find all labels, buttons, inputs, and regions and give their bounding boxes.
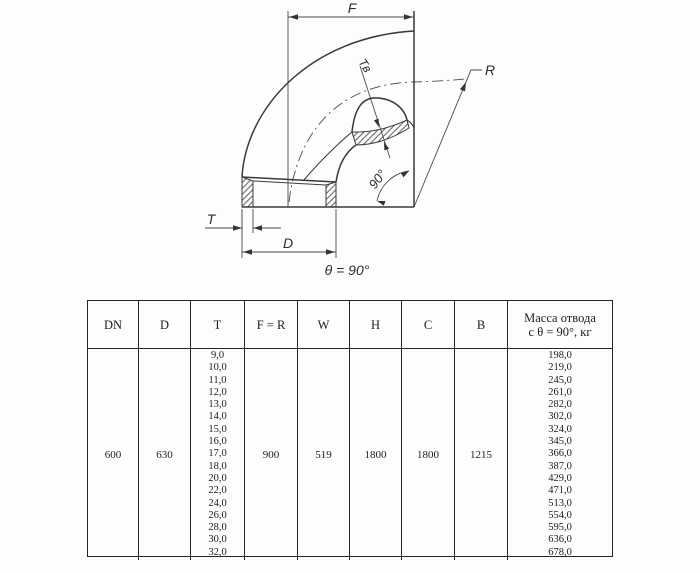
- t-arrow-right: [253, 225, 262, 231]
- r-leader-line: [414, 70, 482, 207]
- t-label: T: [207, 211, 217, 227]
- outer-arc: [242, 31, 414, 177]
- col-header-t: T: [191, 301, 245, 349]
- col-header-c: C: [402, 301, 455, 349]
- tv-arrow-top: [374, 119, 381, 128]
- value-d: 630: [139, 349, 191, 560]
- value-b: 1215: [455, 349, 508, 560]
- t-extension-lines: [205, 209, 281, 233]
- elbow-drawing: F R T D Tв 90° θ = 90°: [0, 0, 700, 292]
- f-label: F: [348, 0, 358, 16]
- value-c: 1800: [402, 349, 455, 560]
- r-label: R: [485, 62, 495, 78]
- angle-arrow-top: [401, 169, 410, 177]
- dimensions-table: DN D T F = R W H C B Масса отвода с θ = …: [87, 300, 613, 557]
- value-h: 1800: [350, 349, 402, 560]
- angle-label: 90°: [365, 167, 389, 192]
- t-arrow-left: [233, 225, 242, 231]
- value-dn: 600: [88, 349, 139, 560]
- f-arrow-right: [404, 14, 413, 20]
- col-header-mass: Масса отвода с θ = 90°, кг: [508, 301, 612, 349]
- value-t-list: 9,0 10,0 11,0 12,0 13,0 14,0 15,0 16,0 1…: [191, 349, 245, 560]
- inner-arc-near: [336, 145, 356, 182]
- value-w: 519: [298, 349, 350, 560]
- value-fr: 900: [245, 349, 298, 560]
- catalog-page: F R T D Tв 90° θ = 90° DN D T F = R W H …: [0, 0, 700, 573]
- col-header-dn: DN: [88, 301, 139, 349]
- r-arrow: [460, 81, 469, 91]
- col-header-fr: F = R: [245, 301, 298, 349]
- d-label: D: [283, 235, 293, 251]
- col-header-w: W: [298, 301, 350, 349]
- tv-label: Tв: [355, 56, 374, 75]
- d-arrow-left: [243, 249, 252, 255]
- d-arrow-right: [326, 249, 335, 255]
- wall-section-right: [326, 182, 336, 207]
- f-arrow-left: [289, 14, 298, 20]
- col-header-d: D: [139, 301, 191, 349]
- wall-section-left: [242, 177, 253, 207]
- outlet-wall-band: [352, 120, 409, 145]
- theta-caption: θ = 90°: [325, 262, 370, 278]
- value-mass-list: 198,0 219,0 245,0 261,0 282,0 302,0 324,…: [508, 349, 612, 560]
- col-header-b: B: [455, 301, 508, 349]
- col-header-h: H: [350, 301, 402, 349]
